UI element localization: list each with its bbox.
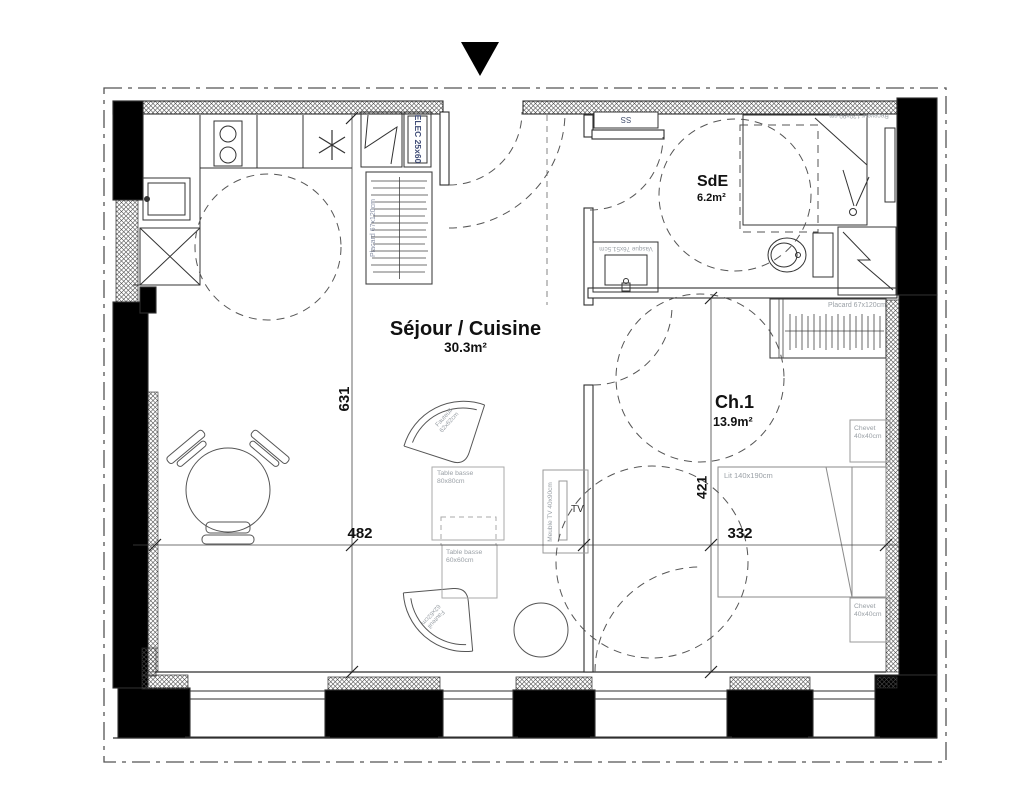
pouf	[514, 603, 568, 657]
ceiling-light-icon	[319, 130, 345, 160]
nightstand-bottom	[850, 598, 890, 642]
fridge	[361, 112, 402, 167]
boundary-line	[104, 88, 946, 762]
entrance-door	[440, 112, 565, 305]
kitchen-sink	[143, 178, 190, 220]
water-heater	[838, 227, 896, 295]
coffee-table-60	[441, 517, 497, 598]
tv-stand	[543, 470, 588, 553]
elec-panel	[404, 112, 431, 167]
toilet	[768, 233, 833, 277]
entrance-marker-icon	[461, 42, 499, 76]
shower	[743, 115, 895, 225]
clearance-circles	[195, 119, 818, 672]
bedroom-door	[593, 306, 672, 385]
floor-plan: Séjour / Cuisine 30.3m² SdE 6.2m² Ch.1 1…	[0, 0, 1030, 800]
kitchen-wardrobe	[366, 172, 432, 284]
dimension-lines	[133, 112, 898, 678]
dining-table	[166, 429, 291, 544]
cooktop	[214, 121, 242, 166]
exterior-walls	[113, 98, 937, 738]
washbasin	[593, 242, 658, 292]
dishwasher	[140, 228, 200, 285]
armchair-top	[404, 385, 485, 466]
bed	[718, 467, 886, 597]
sde-door	[590, 130, 664, 210]
nightstand-top	[850, 420, 890, 462]
shaft-box	[594, 112, 658, 128]
plan-drawing	[0, 0, 1030, 800]
coffee-table-80	[432, 467, 504, 540]
bedroom-wardrobe	[770, 299, 886, 358]
